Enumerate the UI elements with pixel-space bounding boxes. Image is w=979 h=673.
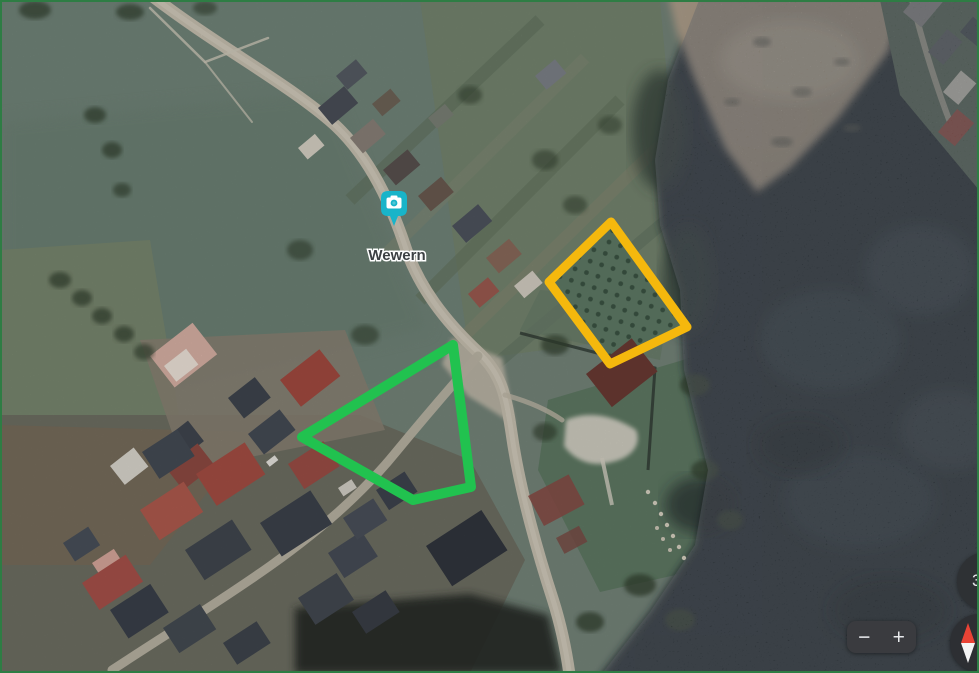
minus-icon: − [858, 627, 870, 648]
zoom-control: − + [847, 621, 916, 653]
plus-icon: + [893, 627, 905, 648]
place-label: Wewern [368, 247, 425, 264]
compass-needle-icon [961, 623, 975, 663]
satellite-map[interactable]: Wewern [0, 0, 979, 673]
zoom-out-button[interactable]: − [847, 627, 882, 648]
zoom-in-button[interactable]: + [882, 627, 917, 648]
count-badge-value: 3 [972, 571, 979, 591]
